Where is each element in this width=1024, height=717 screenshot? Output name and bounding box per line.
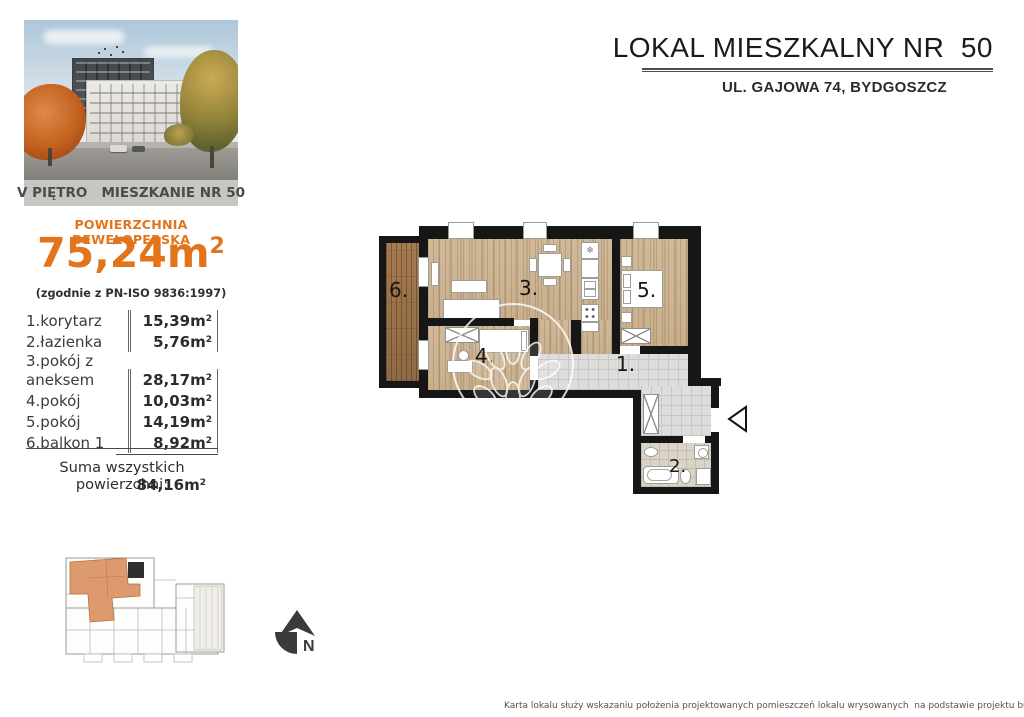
balcony-deck — [386, 243, 419, 381]
area-number: 75,24 — [37, 229, 167, 277]
room-area: 15,39m2 — [128, 310, 218, 331]
bath-wall-top — [641, 436, 683, 443]
dining-chair — [563, 258, 571, 272]
outer-wall-right — [688, 226, 701, 386]
balcony-wall-top — [379, 236, 422, 243]
kitchen-sink — [581, 278, 599, 300]
room-area-unit: m — [190, 392, 206, 410]
entry-wall-left — [633, 390, 641, 494]
kitchen-counter — [581, 322, 599, 332]
fridge: ❄ — [581, 242, 599, 259]
kitchen-counter — [581, 259, 599, 278]
room-row: 2.łazienka 5,76m2 — [26, 331, 218, 352]
hall-wardrobe — [643, 394, 659, 434]
floor-overview-plan — [56, 550, 246, 668]
dining-chair — [543, 278, 557, 286]
washbasin — [644, 447, 658, 457]
room-area-sup: 2 — [206, 394, 212, 404]
sum-number: 84,16 — [137, 476, 184, 494]
room-area: 10,03m2 — [128, 390, 218, 411]
window — [523, 222, 547, 239]
disclaimer-line1: Karta lokalu służy wskazaniu położenia p… — [504, 700, 1020, 712]
dining-chair — [543, 244, 557, 252]
entry-door-arrow-icon — [725, 404, 749, 434]
entry-door-opening — [711, 408, 719, 432]
room4-wardrobe — [445, 327, 479, 343]
sum-divider-short — [116, 454, 218, 455]
tree-trunk — [210, 146, 214, 168]
bath-wall-top-right — [705, 436, 711, 443]
room-area-sup: 2 — [206, 415, 212, 425]
room-area: 8,92m2 — [128, 432, 218, 453]
room5-pillow — [623, 290, 631, 304]
room-area-sup: 2 — [206, 314, 212, 324]
north-arrow-icon: N — [272, 607, 322, 657]
room3-floor-passage — [538, 320, 571, 354]
stove — [581, 304, 599, 322]
room-row: 4.pokój 10,03m2 — [26, 390, 218, 411]
cloud — [44, 30, 124, 44]
car — [132, 146, 145, 152]
room-label-2: 2. — [669, 456, 686, 477]
room4-desk — [447, 360, 473, 373]
room-area-number: 28,17 — [143, 371, 190, 389]
floor-plan: ❄ — [375, 220, 747, 516]
wall-stub — [571, 320, 581, 354]
sum-divider — [26, 448, 218, 449]
room-area-number: 5,76 — [153, 333, 190, 351]
room5-wardrobe — [621, 328, 651, 344]
miniplan-core — [128, 562, 144, 578]
car — [110, 145, 127, 152]
room-area-unit: m — [190, 371, 206, 389]
room-area: 5,76m2 — [128, 331, 218, 352]
wall-room4-hall-lower — [530, 380, 538, 390]
balcony-wall-left — [379, 236, 386, 388]
wall-kitchen-room5 — [612, 239, 620, 354]
balcony-door — [418, 257, 429, 287]
compass-north-letter: N — [303, 638, 315, 655]
room-area-number: 8,92 — [153, 434, 190, 452]
address-line: UL. GAJOWA 74, BYDGOSZCZ — [722, 79, 947, 96]
room-area-number: 10,03 — [143, 392, 190, 410]
hall-floor — [538, 354, 688, 390]
bath-door-opening — [683, 436, 705, 443]
room-name: 6.balkon 1 — [26, 434, 128, 453]
entry-wall-right-upper — [711, 386, 719, 408]
room-area-number: 14,19 — [143, 413, 190, 431]
room-list: 1.korytarz 15,39m2 2.łazienka 5,76m2 3.p… — [26, 310, 218, 453]
area-unit-sup: 2 — [210, 234, 225, 259]
room-row: 1.korytarz 15,39m2 — [26, 310, 218, 331]
room4-chair — [458, 350, 469, 361]
room-label-4: 4. — [475, 344, 494, 368]
sum-value: 84,16m2 — [24, 476, 206, 494]
outer-wall-left — [419, 226, 428, 398]
birds — [98, 52, 100, 54]
room-row: 6.balkon 1 8,92m2 — [26, 432, 218, 453]
room-name: 5.pokój — [26, 413, 128, 432]
room4-pillow — [521, 331, 527, 351]
room-label-5: 5. — [637, 278, 656, 302]
building-photo — [24, 20, 238, 180]
room-label-3: 3. — [519, 276, 538, 300]
room-label-1: 1. — [616, 352, 635, 376]
room-area: 14,19m2 — [128, 411, 218, 432]
entry-wall-right-lower — [711, 432, 719, 494]
outer-wall-step — [688, 378, 721, 386]
dining-chair — [529, 258, 537, 272]
washing-machine — [694, 445, 709, 459]
area-unit: m — [167, 229, 210, 277]
room-row: 5.pokój 14,19m2 — [26, 411, 218, 432]
balcony-wall-bottom — [379, 381, 422, 388]
room3-tv-unit — [431, 262, 439, 286]
room-label-6: 6. — [389, 278, 408, 302]
catalog-card-page: LOKAL MIESZKALNY NR 50 UL. GAJOWA 74, BY… — [0, 0, 1024, 717]
room3-sideboard — [451, 280, 487, 293]
room-row: 3.pokój z aneksem 28,17m2 — [26, 352, 218, 390]
room-area-unit: m — [190, 333, 206, 351]
room5-nightstand — [621, 312, 632, 323]
bath-wall-bottom — [633, 487, 719, 494]
room-area: 28,17m2 — [128, 369, 218, 390]
area-value: 75,24m2 — [24, 229, 238, 277]
balcony-door — [418, 340, 429, 370]
room-area-sup: 2 — [206, 335, 212, 345]
outer-wall-bottom — [419, 390, 641, 398]
room-area-sup: 2 — [206, 436, 212, 446]
sum-unit: m — [184, 476, 200, 494]
room-area-unit: m — [190, 312, 206, 330]
dining-table — [538, 253, 562, 277]
room-name: 4.pokój — [26, 392, 128, 411]
room5-pillow — [623, 274, 631, 288]
title-divider — [642, 68, 993, 72]
area-norm: (zgodnie z PN-ISO 9836:1997) — [24, 287, 238, 300]
wall-room4-hall-upper — [530, 318, 538, 356]
window — [633, 222, 659, 239]
room-name: 2.łazienka — [26, 333, 128, 352]
room-area-sup: 2 — [206, 373, 212, 383]
wall-room3-room4 — [427, 318, 514, 326]
room-name: 1.korytarz — [26, 312, 128, 331]
shower-tray — [696, 468, 711, 485]
tree-trunk — [48, 148, 52, 166]
room-area-number: 15,39 — [143, 312, 190, 330]
wall-room5-hall — [640, 346, 688, 354]
window — [448, 222, 474, 239]
disclaimer: Karta lokalu służy wskazaniu położenia p… — [504, 676, 1020, 717]
room-area-unit: m — [190, 413, 206, 431]
photo-caption: V PIĘTRO MIESZKANIE NR 50 — [24, 180, 238, 206]
room-name: 3.pokój z aneksem — [26, 352, 128, 390]
room5-nightstand — [621, 256, 632, 267]
sum-unit-sup: 2 — [200, 478, 206, 488]
page-title: LOKAL MIESZKALNY NR 50 — [613, 32, 993, 64]
room-area-unit: m — [190, 434, 206, 452]
